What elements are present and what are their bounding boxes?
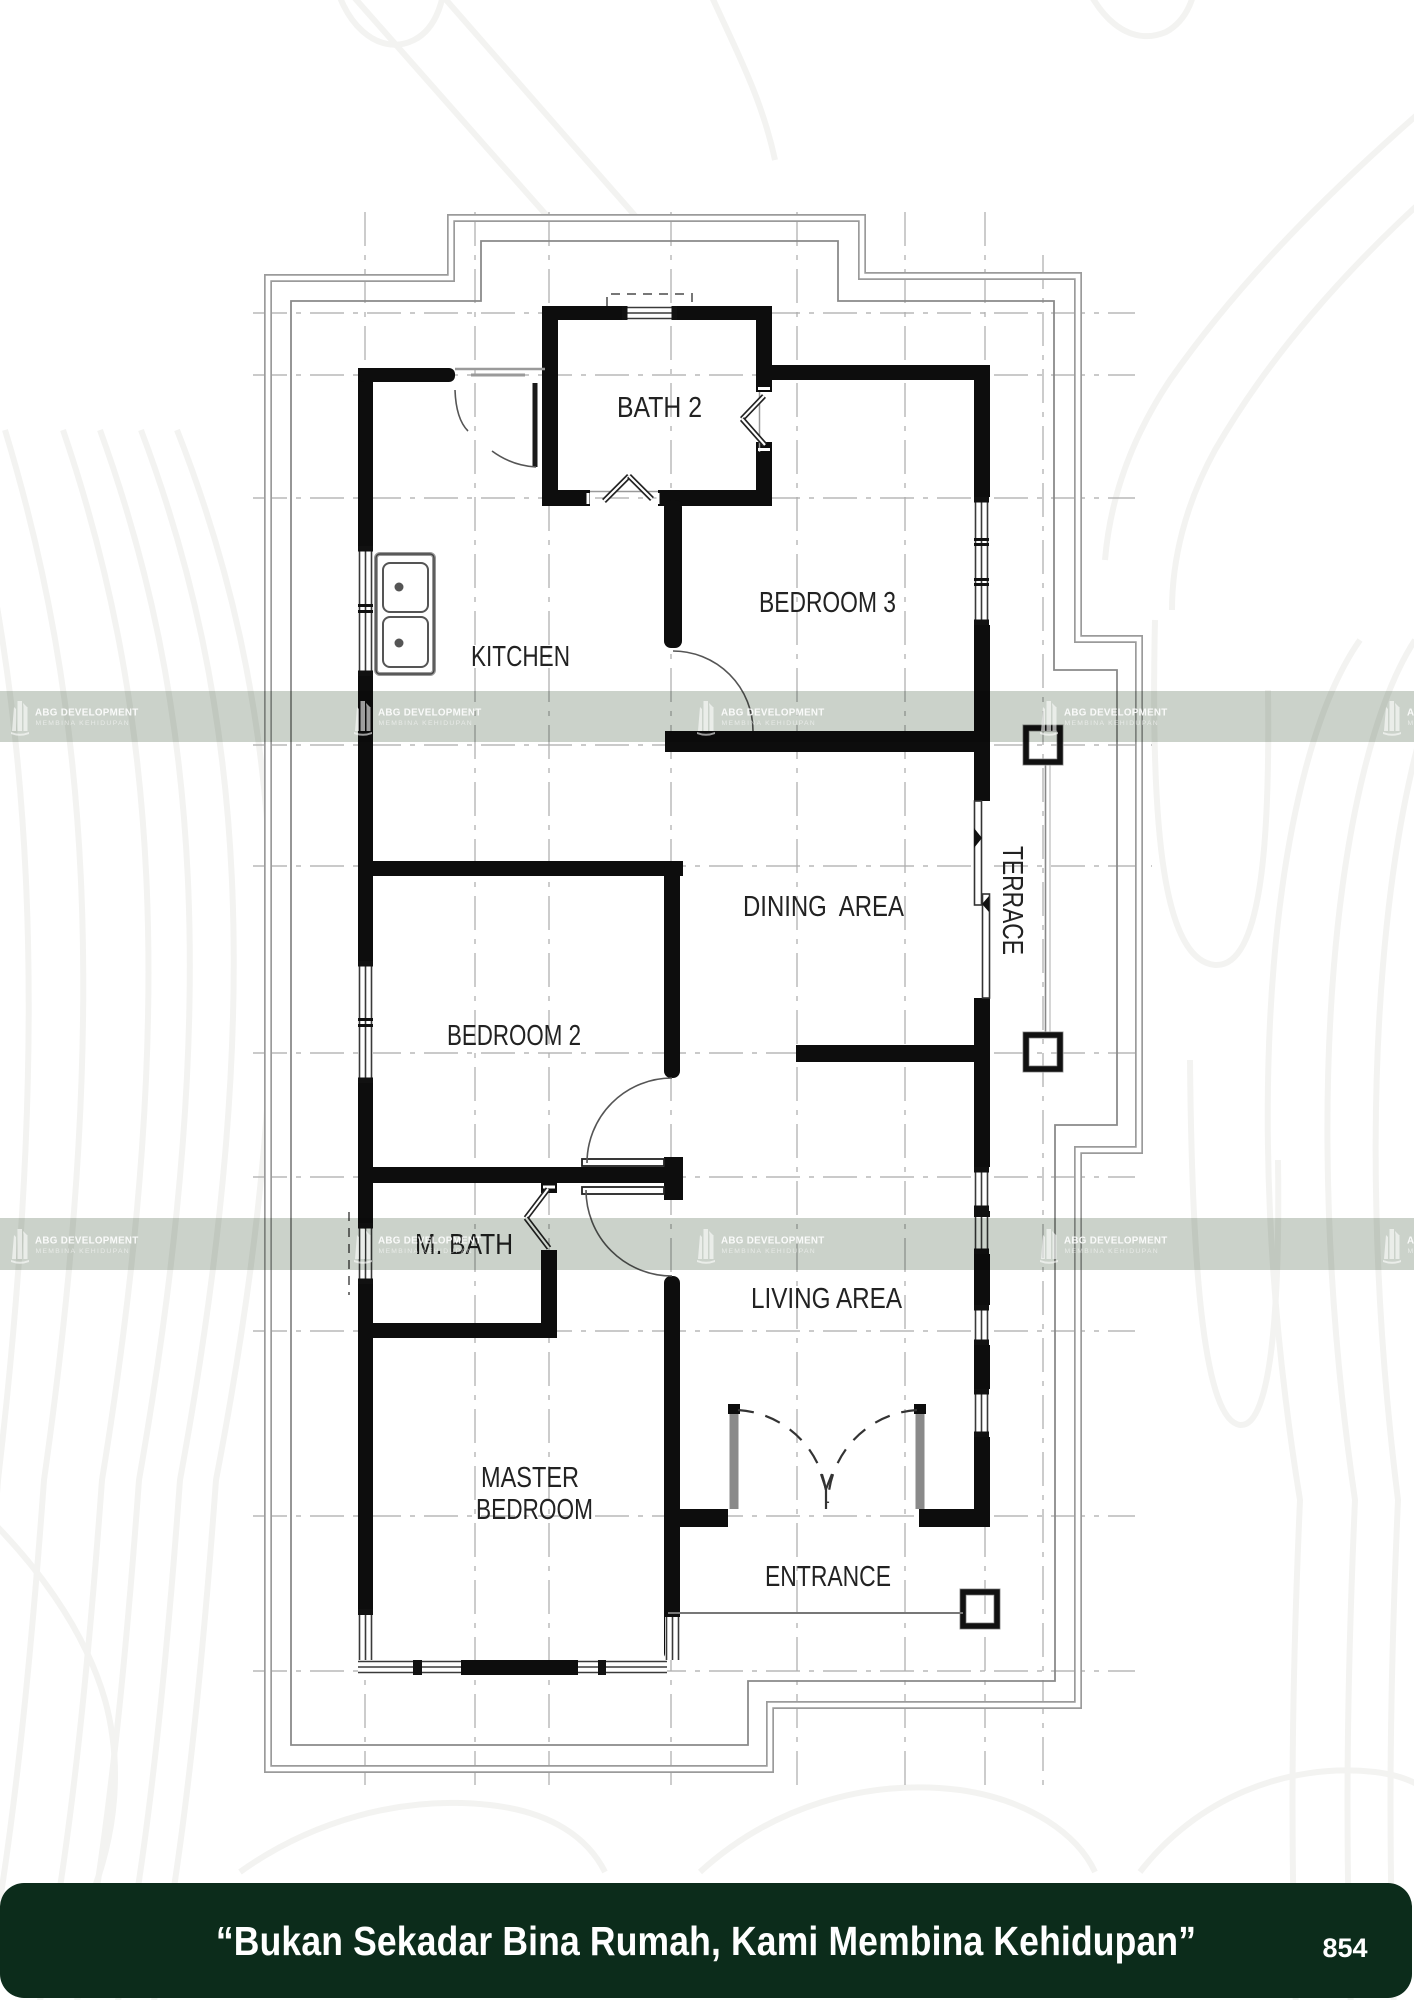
svg-text:ABG DEVELOPMENT: ABG DEVELOPMENT xyxy=(1064,708,1168,719)
svg-text:BEDROOM: BEDROOM xyxy=(476,1494,593,1526)
svg-text:BATH 2: BATH 2 xyxy=(617,392,702,424)
svg-text:ABG DEVELOPMENT: ABG DEVELOPMENT xyxy=(1407,708,1414,719)
svg-text:MEMBINA KEHIDUPAN: MEMBINA KEHIDUPAN xyxy=(379,1248,474,1255)
svg-text:DINING AREA: DINING AREA xyxy=(743,891,905,923)
svg-text:MEMBINA KEHIDUPAN: MEMBINA KEHIDUPAN xyxy=(1408,1248,1414,1255)
svg-text:ABG DEVELOPMENT: ABG DEVELOPMENT xyxy=(35,708,139,719)
svg-text:MEMBINA KEHIDUPAN: MEMBINA KEHIDUPAN xyxy=(1408,720,1414,727)
svg-text:TERRACE: TERRACE xyxy=(996,846,1028,955)
svg-text:KITCHEN: KITCHEN xyxy=(471,641,570,673)
svg-text:MASTER: MASTER xyxy=(481,1462,579,1494)
svg-text:MEMBINA KEHIDUPAN: MEMBINA KEHIDUPAN xyxy=(722,720,817,727)
svg-text:ABG DEVELOPMENT: ABG DEVELOPMENT xyxy=(1407,1236,1414,1247)
svg-text:ABG DEVELOPMENT: ABG DEVELOPMENT xyxy=(721,708,825,719)
svg-text:MEMBINA KEHIDUPAN: MEMBINA KEHIDUPAN xyxy=(1065,1248,1160,1255)
svg-text:MEMBINA KEHIDUPAN: MEMBINA KEHIDUPAN xyxy=(1065,720,1160,727)
svg-text:ABG DEVELOPMENT: ABG DEVELOPMENT xyxy=(721,1236,825,1247)
svg-text:BEDROOM 2: BEDROOM 2 xyxy=(447,1020,581,1052)
svg-text:ABG DEVELOPMENT: ABG DEVELOPMENT xyxy=(378,708,482,719)
svg-text:ENTRANCE: ENTRANCE xyxy=(765,1561,891,1593)
svg-text:MEMBINA KEHIDUPAN: MEMBINA KEHIDUPAN xyxy=(722,1248,817,1255)
svg-text:ABG DEVELOPMENT: ABG DEVELOPMENT xyxy=(1064,1236,1168,1247)
svg-text:ABG DEVELOPMENT: ABG DEVELOPMENT xyxy=(35,1236,139,1247)
svg-text:ABG DEVELOPMENT: ABG DEVELOPMENT xyxy=(378,1236,482,1247)
svg-text:MEMBINA KEHIDUPAN: MEMBINA KEHIDUPAN xyxy=(379,720,474,727)
svg-text:LIVING AREA: LIVING AREA xyxy=(751,1283,903,1315)
svg-text:BEDROOM 3: BEDROOM 3 xyxy=(759,587,896,619)
svg-text:MEMBINA KEHIDUPAN: MEMBINA KEHIDUPAN xyxy=(36,1248,131,1255)
svg-text:MEMBINA KEHIDUPAN: MEMBINA KEHIDUPAN xyxy=(36,720,131,727)
